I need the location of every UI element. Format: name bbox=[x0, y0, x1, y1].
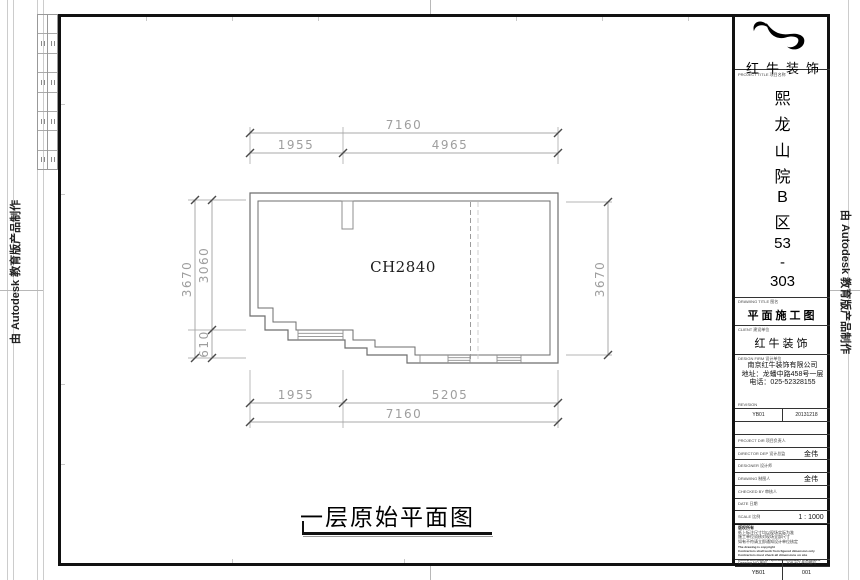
project-char: 龙 bbox=[774, 111, 790, 135]
revision-label: REVISION bbox=[738, 402, 757, 407]
row-label: DESIGNER 设计师 bbox=[735, 463, 792, 469]
project-char: 院 bbox=[774, 163, 790, 187]
project-char: 熙 bbox=[774, 85, 790, 109]
table-row: DRAWING 制图人 金伟 bbox=[735, 473, 830, 486]
table-row: DIRECTOR DEP 设计总监 金伟 bbox=[735, 448, 830, 461]
row-value: 金伟 bbox=[792, 474, 830, 484]
project-title-label: PROJECT TITLE 项目名称 bbox=[735, 71, 830, 78]
project-char: 303 bbox=[770, 273, 795, 290]
row-label: DIRECTOR DEP 设计总监 bbox=[735, 451, 792, 457]
drawing-title-value: 平面施工图 bbox=[735, 307, 830, 323]
dim-left-total: 3670 bbox=[180, 261, 194, 298]
logo-section: 红牛装饰 bbox=[735, 14, 830, 70]
drawing-no-value: YB01 bbox=[735, 567, 782, 580]
row-label: CHECKED BY 审核人 bbox=[735, 489, 792, 495]
dim-top-total: 7160 bbox=[386, 118, 423, 132]
row-label: DATE 日期 bbox=[735, 501, 792, 507]
personnel-table: PROJECT DIR 项目负责人 DIRECTOR DEP 设计总监 金伟 D… bbox=[735, 435, 830, 524]
dim-top-left: 1955 bbox=[278, 138, 315, 152]
floor-plan: CH2840 7160 1955 4965 1955 5205 7160 bbox=[0, 0, 860, 580]
wall-stub bbox=[342, 201, 353, 229]
client-value: 红牛装饰 bbox=[735, 335, 830, 351]
row-value: 金伟 bbox=[792, 449, 830, 459]
dim-left-lower: 610 bbox=[197, 330, 211, 357]
revision-code: YB01 bbox=[735, 409, 783, 421]
dim-top-right: 4965 bbox=[432, 138, 469, 152]
revision-date: 20131218 bbox=[783, 409, 830, 421]
title-block: 红牛装饰 PROJECT TITLE 项目名称 熙 龙 山 院 B 区 53 -… bbox=[735, 14, 830, 566]
firm-address: 地址：龙蟠中路458号一层 bbox=[739, 371, 826, 380]
design-firm-label: DESIGN FIRM 设计单位 bbox=[735, 355, 830, 361]
table-row: DESIGNER 设计师 bbox=[735, 460, 830, 473]
project-char: 山 bbox=[774, 137, 790, 161]
table-row: PROJECT DIR 项目负责人 bbox=[735, 435, 830, 448]
drawing-title-section: DRAWING TITLE 图名 平面施工图 bbox=[735, 298, 830, 326]
row-label: SCALE 比例 bbox=[735, 514, 792, 520]
job-no-value: 001 bbox=[783, 567, 830, 580]
footer-section: Drawing NO 图号 YB01 JOB NO 合同编号 001 bbox=[735, 559, 830, 580]
row-label: DRAWING 制图人 bbox=[735, 476, 792, 482]
project-char: 区 bbox=[774, 209, 790, 233]
cad-sheet: 由 Autodesk 教育版产品制作 由 Autodesk 教育版产品制作 bbox=[0, 0, 860, 580]
room-height-label: CH2840 bbox=[370, 258, 436, 276]
bull-logo-icon bbox=[744, 16, 822, 52]
plan-caption: 一层原始平面图 bbox=[300, 498, 530, 532]
plan-caption-text: 一层原始平面图 bbox=[300, 504, 475, 530]
client-section: CLIENT 建设单位 红牛装饰 bbox=[735, 326, 830, 355]
table-row: SCALE 比例 1 : 1000 bbox=[735, 511, 830, 524]
dim-right-total: 3670 bbox=[593, 261, 607, 298]
drawing-no-label: Drawing NO 图号 bbox=[735, 560, 782, 567]
firm-name: 南京红牛装饰有限公司 bbox=[739, 362, 826, 371]
empty-row bbox=[735, 422, 830, 435]
job-no-label: JOB NO 合同编号 bbox=[783, 560, 830, 567]
revision-row: YB01 20131218 bbox=[735, 409, 830, 422]
notes-section: 版权所有 纸上标注尺寸均以现场实际为准 施工单位须核对现场全部尺寸 如有不符请立… bbox=[735, 524, 830, 559]
dim-bottom-total: 7160 bbox=[386, 407, 423, 421]
dim-bottom-right: 5205 bbox=[432, 388, 469, 402]
project-name: 熙 龙 山 院 B 区 53 - 303 bbox=[735, 78, 830, 298]
firm-phone: 电话：025-52328155 bbox=[739, 379, 826, 388]
design-firm-section: DESIGN FIRM 设计单位 南京红牛装饰有限公司 地址：龙蟠中路458号一… bbox=[735, 355, 830, 409]
table-row: DATE 日期 bbox=[735, 499, 830, 512]
project-char: 53 bbox=[774, 235, 791, 252]
project-char: - bbox=[780, 254, 785, 271]
row-label: PROJECT DIR 项目负责人 bbox=[735, 438, 792, 444]
drawing-title-label: DRAWING TITLE 图名 bbox=[735, 298, 830, 304]
project-char: B bbox=[777, 189, 788, 207]
dim-bottom-left: 1955 bbox=[278, 388, 315, 402]
row-value: 1 : 1000 bbox=[792, 514, 830, 521]
dim-left-upper: 3060 bbox=[197, 247, 211, 284]
client-label: CLIENT 建设单位 bbox=[735, 326, 830, 332]
table-row: CHECKED BY 审核人 bbox=[735, 486, 830, 499]
